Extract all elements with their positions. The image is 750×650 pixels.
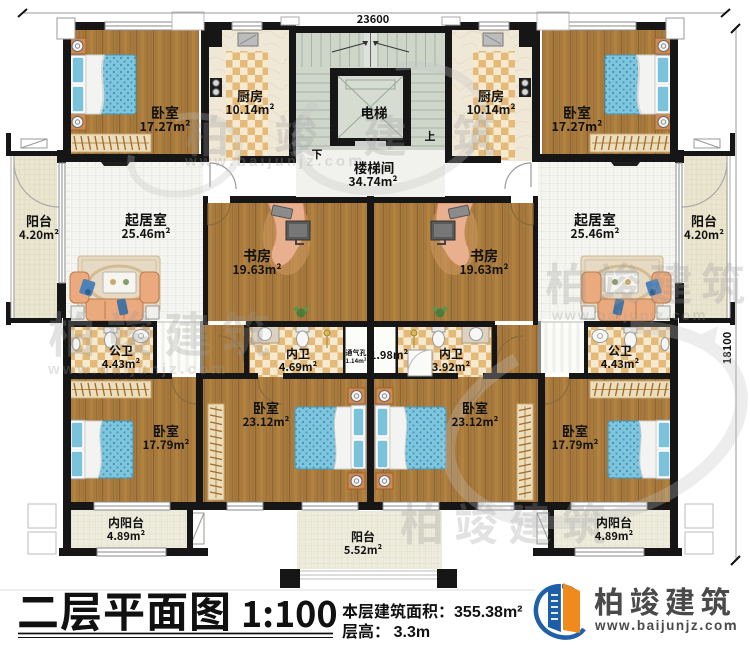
- svg-text:www.baijunjz.com: www.baijunjz.com: [551, 305, 708, 325]
- svg-text:www.baijunjz.com: www.baijunjz.com: [184, 150, 366, 171]
- svg-text:19.63m²: 19.63m²: [233, 261, 282, 278]
- svg-text:4.69m²: 4.69m²: [279, 359, 318, 375]
- svg-text:5.52m²: 5.52m²: [344, 542, 383, 558]
- svg-text:柏竣建筑: 柏竣建筑: [545, 249, 750, 313]
- svg-text:23600: 23600: [357, 11, 389, 27]
- svg-text:23.12m²: 23.12m²: [452, 414, 499, 430]
- svg-text:17.27m²: 17.27m²: [552, 116, 603, 135]
- svg-text:下: 下: [312, 146, 323, 162]
- svg-text:二层平面图: 二层平面图: [17, 579, 232, 640]
- svg-text:电梯: 电梯: [361, 102, 388, 122]
- svg-text:17.79m²: 17.79m²: [552, 437, 599, 453]
- svg-text:34.74m²: 34.74m²: [349, 173, 398, 190]
- svg-text:www.baijunjz.com: www.baijunjz.com: [594, 614, 738, 634]
- svg-text:4.89m²: 4.89m²: [595, 528, 634, 544]
- svg-text:4.20m²: 4.20m²: [684, 227, 724, 243]
- svg-text:23.12m²: 23.12m²: [243, 414, 290, 430]
- svg-text:4.43m²: 4.43m²: [102, 356, 141, 372]
- svg-text:10.14m²: 10.14m²: [467, 101, 516, 118]
- svg-text:4.89m²: 4.89m²: [107, 528, 146, 544]
- svg-text:25.46m²: 25.46m²: [571, 225, 620, 242]
- svg-text:1.14m²: 1.14m²: [346, 356, 367, 365]
- svg-text:柏竣建筑: 柏竣建筑: [48, 296, 280, 366]
- svg-text:1:100: 1:100: [241, 586, 338, 638]
- svg-text:17.27m²: 17.27m²: [140, 116, 191, 135]
- svg-text:17.79m²: 17.79m²: [143, 437, 190, 453]
- svg-text:19.63m²: 19.63m²: [460, 261, 509, 278]
- svg-text:3.92m²: 3.92m²: [432, 359, 471, 375]
- svg-text:1.98m²: 1.98m²: [370, 347, 409, 363]
- svg-text:4.43m²: 4.43m²: [601, 356, 640, 372]
- svg-text:10.14m²: 10.14m²: [226, 101, 275, 118]
- svg-text:25.46m²: 25.46m²: [122, 225, 171, 242]
- svg-text:4.20m²: 4.20m²: [19, 227, 59, 243]
- svg-text:上: 上: [425, 128, 436, 144]
